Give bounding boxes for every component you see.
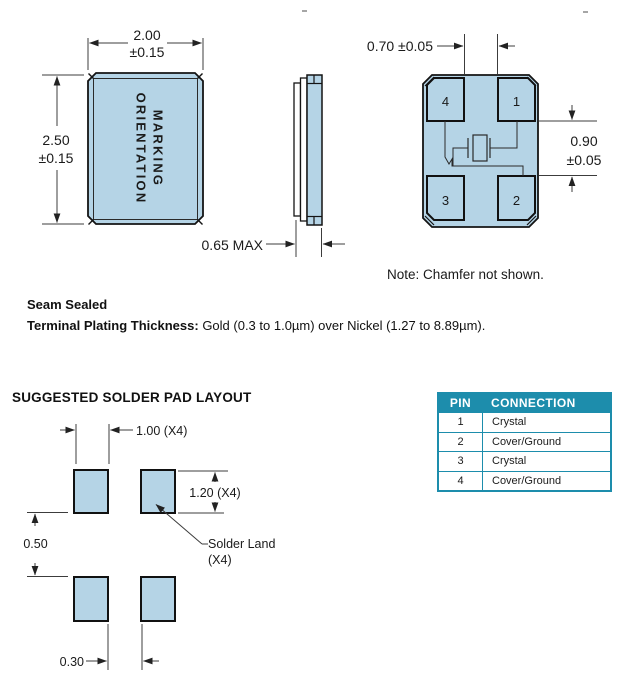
datasheet-mechanical-page: MARKING ORIENTATION 2.00 ±0.15 2.50 ±0.1… <box>0 0 640 695</box>
land-col-gap-dimension <box>86 624 159 670</box>
pin-number: 2 <box>438 432 483 452</box>
marking-orientation-label-line2: ORIENTATION <box>134 93 149 205</box>
table-row: 3 Crystal <box>438 452 611 472</box>
pad-2-label: 2 <box>513 193 520 208</box>
pin-connection: Crystal <box>483 452 612 472</box>
side-view-body <box>307 75 322 225</box>
plating-note: Terminal Plating Thickness: Gold (0.3 to… <box>27 315 485 336</box>
chamfer-note: Note: Chamfer not shown. <box>387 267 544 282</box>
seam-sealed-note: Seam Sealed <box>27 294 485 315</box>
pin-connection-table: PIN CONNECTION 1 Crystal 2 Cover/Ground … <box>437 392 612 492</box>
row-gap-tolerance: ±0.05 <box>567 152 602 168</box>
pin-number: 4 <box>438 471 483 491</box>
solder-land-callout-line1: Solder Land <box>208 537 275 551</box>
table-row: 4 Cover/Ground <box>438 471 611 491</box>
side-view-lid <box>294 83 301 216</box>
pad-gap-dimension <box>437 34 515 74</box>
plating-label: Terminal Plating Thickness: <box>27 318 199 333</box>
pin-connection: Cover/Ground <box>483 471 612 491</box>
marking-orientation-label-line1: MARKING <box>151 110 166 188</box>
solder-land-callout-line2: (X4) <box>208 553 232 567</box>
plating-value: Gold (0.3 to 1.0µm) over Nickel (1.27 to… <box>199 318 486 333</box>
front-width-tolerance: ±0.15 <box>130 44 165 60</box>
front-height-value: 2.50 <box>42 132 69 148</box>
solder-land-bottom-left <box>74 577 108 621</box>
land-row-gap-value: 0.50 <box>23 537 47 551</box>
connection-column-header: CONNECTION <box>483 393 612 413</box>
side-thickness-dimension <box>266 220 345 257</box>
front-height-tolerance: ±0.15 <box>39 150 74 166</box>
front-width-value: 2.00 <box>133 27 160 43</box>
pad-1-label: 1 <box>513 94 520 109</box>
table-row: 2 Cover/Ground <box>438 432 611 452</box>
land-col-gap-value: 0.30 <box>60 655 84 669</box>
pad-3-label: 3 <box>442 193 449 208</box>
side-thickness-value: 0.65 MAX <box>202 237 264 253</box>
land-width-dimension <box>60 424 133 464</box>
seam-sealed-label: Seam Sealed <box>27 297 107 312</box>
solder-lands <box>74 470 175 621</box>
side-view-base <box>301 78 308 221</box>
crop-dashes <box>302 11 588 12</box>
front-view: MARKING ORIENTATION <box>88 73 203 225</box>
side-view <box>294 75 322 225</box>
table-row: 1 Crystal <box>438 413 611 433</box>
land-height-value: 1.20 (X4) <box>189 486 240 500</box>
pin-column-header: PIN <box>438 393 483 413</box>
solder-land-bottom-right <box>141 577 175 621</box>
pad-4-label: 4 <box>442 94 449 109</box>
row-gap-value: 0.90 <box>570 133 597 149</box>
solder-pad-layout-title: SUGGESTED SOLDER PAD LAYOUT <box>12 390 251 405</box>
bottom-view: 4 1 3 2 <box>423 75 538 227</box>
sealing-notes: Seam Sealed Terminal Plating Thickness: … <box>27 294 485 336</box>
land-width-value: 1.00 (X4) <box>136 424 187 438</box>
solder-land-top-left <box>74 470 108 513</box>
pin-number: 1 <box>438 413 483 433</box>
pin-table-header-row: PIN CONNECTION <box>438 393 611 413</box>
pin-connection: Crystal <box>483 413 612 433</box>
solder-pad-layout-drawing: 1.00 (X4) 1.20 (X4) 0.50 0.30 <box>0 410 340 695</box>
pin-connection: Cover/Ground <box>483 432 612 452</box>
pad-gap-value: 0.70 ±0.05 <box>367 38 433 54</box>
pin-number: 3 <box>438 452 483 472</box>
